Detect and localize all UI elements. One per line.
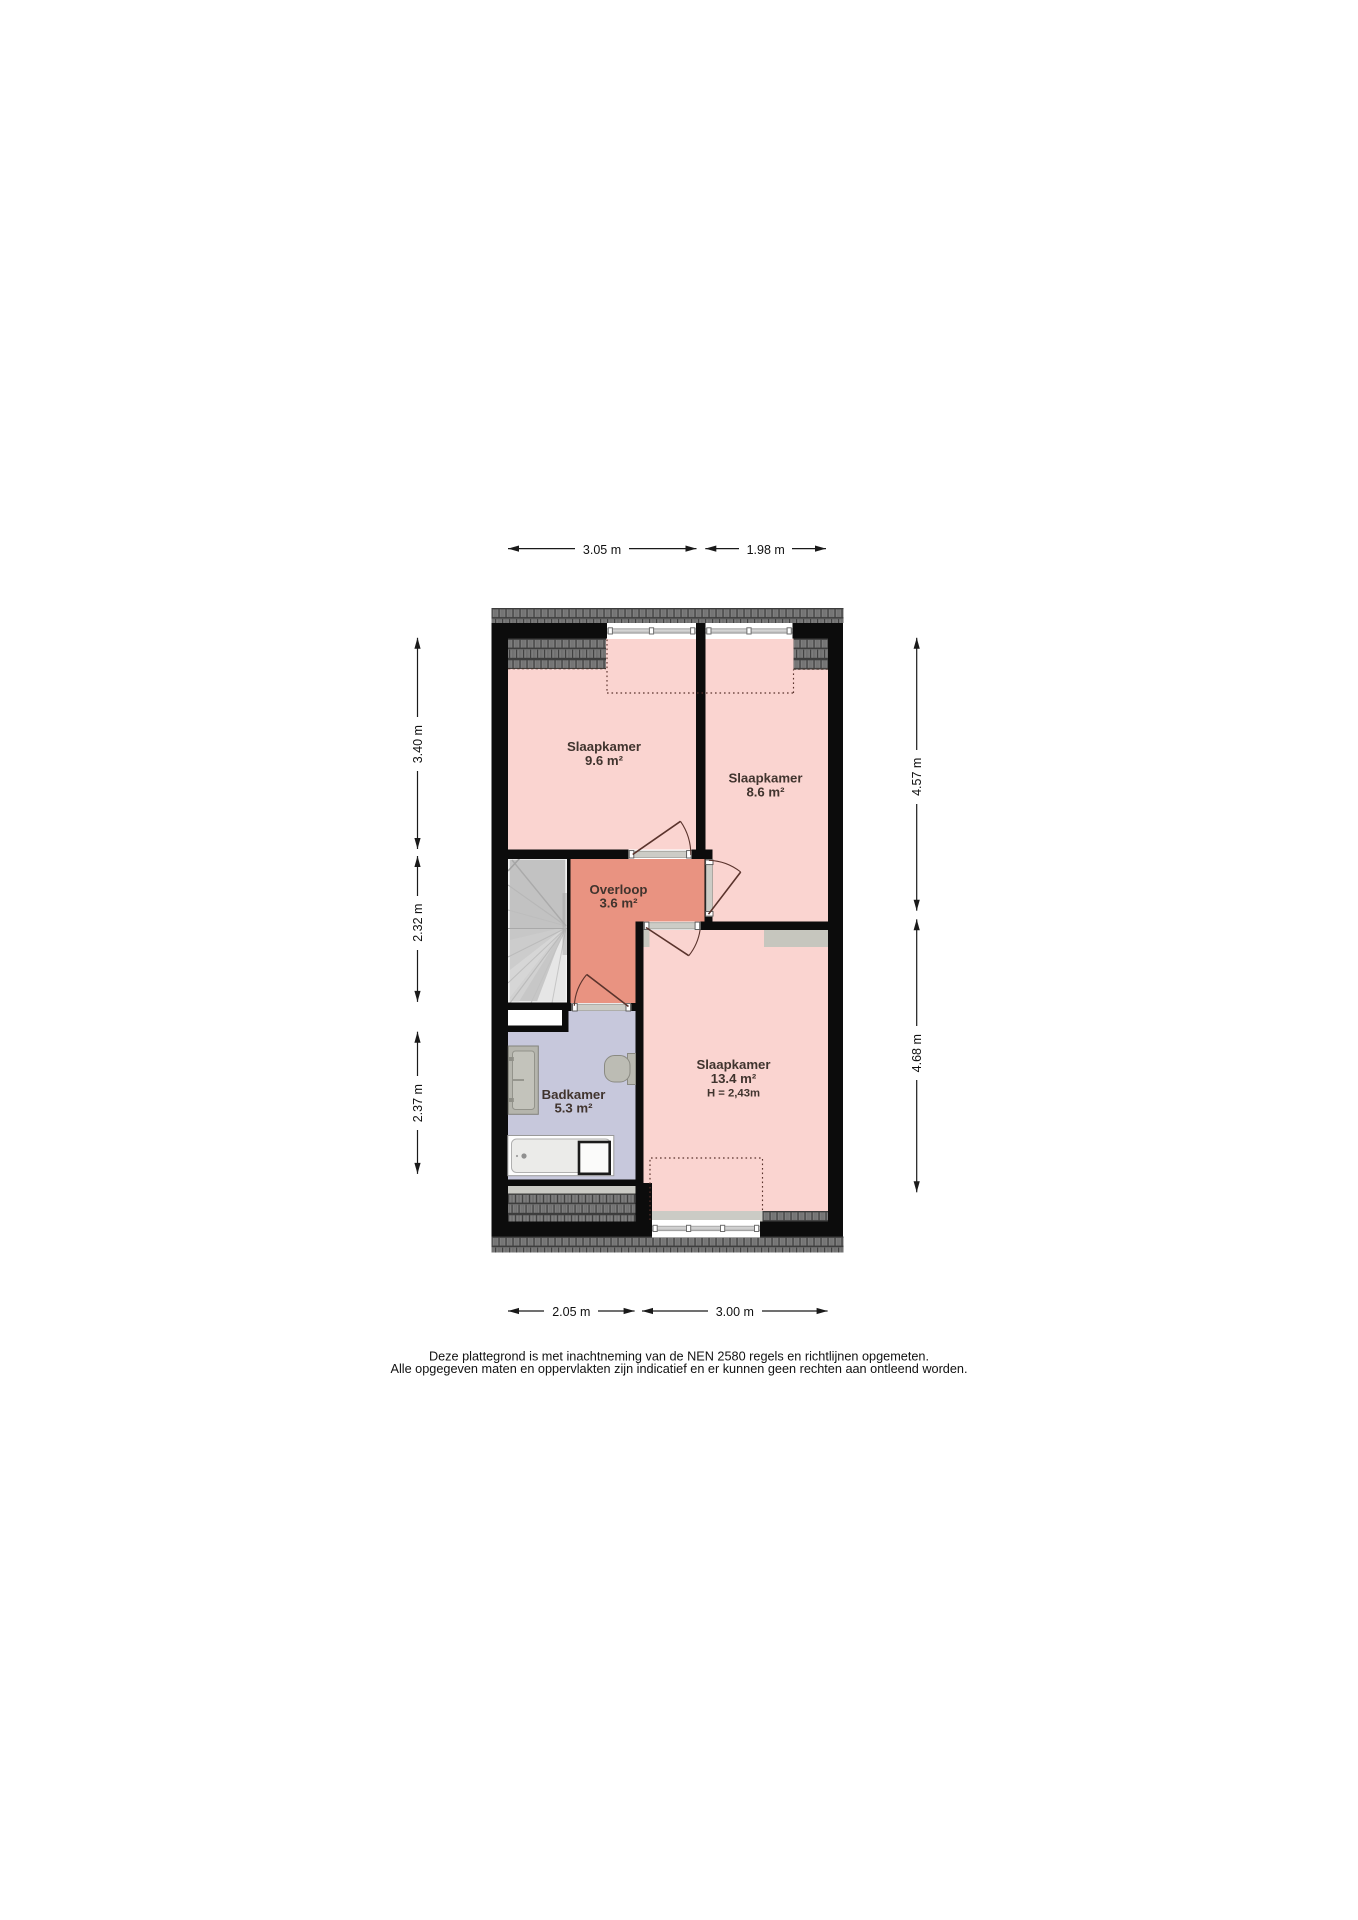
svg-text:8.6 m²: 8.6 m²	[746, 785, 785, 800]
svg-text:5.3 m²: 5.3 m²	[554, 1101, 593, 1116]
svg-text:3.40 m: 3.40 m	[411, 725, 425, 763]
svg-text:3.6 m²: 3.6 m²	[599, 896, 638, 911]
svg-text:2.05 m: 2.05 m	[552, 1305, 590, 1319]
svg-text:3.05 m: 3.05 m	[583, 543, 621, 557]
svg-text:Slaapkamer: Slaapkamer	[696, 1057, 770, 1072]
svg-text:1.98 m: 1.98 m	[747, 543, 785, 557]
svg-text:Slaapkamer: Slaapkamer	[567, 739, 641, 754]
svg-text:2.37 m: 2.37 m	[411, 1084, 425, 1122]
svg-text:Slaapkamer: Slaapkamer	[728, 771, 802, 786]
svg-text:4.57 m: 4.57 m	[910, 758, 924, 796]
svg-text:Alle opgegeven maten en opperv: Alle opgegeven maten en oppervlakten zij…	[391, 1362, 968, 1376]
svg-text:2.32 m: 2.32 m	[411, 904, 425, 942]
svg-text:3.00 m: 3.00 m	[716, 1305, 754, 1319]
svg-text:9.6 m²: 9.6 m²	[585, 753, 624, 768]
svg-text:H = 2,43m: H = 2,43m	[707, 1088, 760, 1100]
svg-text:13.4 m²: 13.4 m²	[711, 1071, 757, 1086]
svg-text:4.68 m: 4.68 m	[910, 1034, 924, 1072]
